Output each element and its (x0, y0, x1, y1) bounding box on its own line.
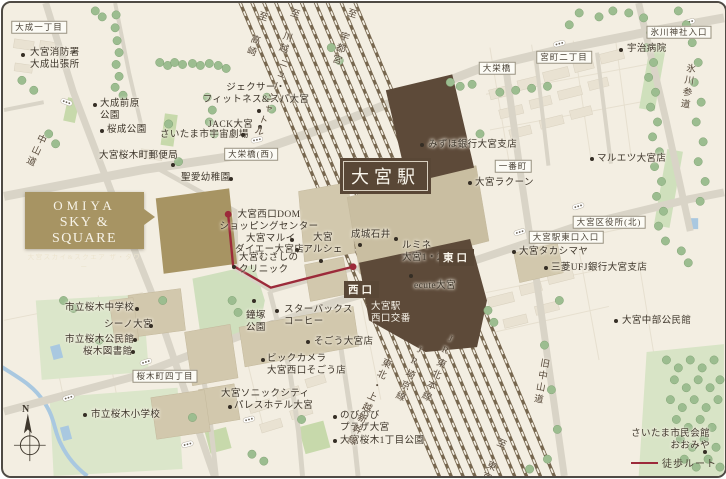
poi-dot-maruetsu (590, 157, 594, 161)
poi-dot-takashimaya (512, 250, 516, 254)
poi-label-sakuragi-elementary: 市立桜木小学校 (91, 410, 160, 422)
poi-dot-sakuragi-community-hall (133, 338, 137, 342)
poi-dot-seiai-kindergarten (229, 177, 233, 181)
poi-label-starbucks: スターバックスコーヒー (284, 305, 353, 328)
logo-title-line2: SKY & SQUARE (25, 215, 144, 247)
poi-dot-lumine (394, 237, 398, 241)
area-label-hikawa-jinja-iriguchi: 氷川神社入口 (646, 26, 711, 39)
area-label-daieibashi-west: 大栄橋(西) (224, 148, 278, 161)
poi-label-lumine: ルミネ大宮1・2 (402, 241, 442, 264)
poi-label-sakuragi-junior-high: 市立桜木中学校 (65, 303, 134, 315)
poi-label-mufg-bank: 三菱UFJ銀行大宮支店 (551, 263, 647, 275)
exit-label-west: 西口 (344, 281, 379, 298)
poi-label-palace-hotel: パレスホテル大宮 (234, 401, 313, 413)
poi-dot-musashino-clinic (232, 265, 236, 269)
line-label-to-takasaki: 至 高崎 (241, 9, 269, 59)
poi-dot-arche (319, 259, 323, 263)
poi-label-shino-omiya: シーノ大宮 (104, 320, 153, 332)
poi-dot-ecute (409, 274, 413, 278)
route-line-sample (631, 462, 658, 464)
poi-label-chubu-community-hall: 大宮中部公民館 (622, 316, 691, 328)
poi-dot-sakuragi-junior-high (135, 307, 139, 311)
line-label-nakasendo: 中山道 (20, 131, 48, 170)
poi-label-post-office: 大宮桜木町郵便局 (99, 151, 178, 163)
poi-dot-sakuragi-1chome-park (333, 439, 337, 443)
route-legend-label: 徒歩ルート (662, 455, 717, 470)
poi-dot-maehara-park (93, 103, 97, 107)
poi-dot-mizuho-bank (420, 143, 424, 147)
poi-label-space-theater: さいたま市宇宙劇場 (160, 130, 249, 142)
poi-label-sogo: そごう大宮店 (314, 337, 373, 349)
area-label-ichibancho: 一番町 (495, 160, 532, 173)
poi-dot-racoon (468, 181, 472, 185)
poi-dot-nobinobi-plaza (333, 415, 337, 419)
line-label-to-utsunomiya: 至 宇都宮 (327, 6, 359, 68)
project-logo-box: OMIYA SKY & SQUARE 大宮スカイ&スクエア ザ・タワー (25, 192, 144, 249)
poi-label-seijo-ishii: 成城石井 (351, 230, 391, 242)
poi-label-musashino-clinic: 大宮むさしのクリニック (239, 253, 298, 276)
area-label-miyacho-2chome: 宮町二丁目 (536, 51, 592, 64)
poi-label-seiai-kindergarten: 聖愛幼稚園 (181, 173, 231, 185)
poi-label-sakuragi-community-hall: 市立桜木公民館 (65, 335, 134, 347)
poi-label-uji-hospital: 宇治病院 (627, 44, 667, 56)
poi-dot-saitama-civic-hall (703, 450, 707, 454)
omiya-area-access-map: 大宮消防署大成出張所大成前原公園桜成公園大宮桜木町郵便局ジェクサー・フィットネス… (1, 1, 726, 478)
poi-label-sakuragi-library: 桜木図書館 (83, 347, 133, 359)
poi-label-maehara-park: 大成前原公園 (100, 99, 140, 122)
poi-label-biccamera: ビックカメラ大宮西口そごう店 (267, 354, 346, 377)
poi-label-sonic-city: 大宮ソニックシティ (221, 389, 310, 401)
poi-dot-mufg-bank (544, 266, 548, 270)
route-legend: 徒歩ルート (631, 455, 717, 470)
area-label-higashiguchi-iriguchi: 大宮駅東口入口 (529, 231, 604, 244)
poi-dot-starbucks (275, 309, 279, 313)
line-label-to-tokyo: 至 東京 (476, 435, 509, 478)
poi-dot-uji-hospital (619, 48, 623, 52)
poi-dot-kanetsuka-park (252, 299, 256, 303)
poi-dot-sakuranari-park (100, 129, 104, 133)
poi-label-fire-station: 大宮消防署大成出張所 (30, 48, 80, 71)
poi-label-dom-shopping: 大宮西口DOMショッピングセンター (219, 210, 318, 233)
poi-label-ecute: ecute大宮 (414, 281, 456, 293)
poi-dot-post-office (171, 163, 175, 167)
area-label-ward-office-north: 大宮区役所(北) (573, 216, 646, 229)
poi-dot-palace-hotel (228, 405, 232, 409)
exit-label-east: 東口 (439, 249, 474, 266)
poi-dot-sakuragi-elementary (83, 413, 87, 417)
poi-dot-fire-station (21, 53, 25, 57)
poi-dot-biccamera (261, 358, 265, 362)
logo-subtitle: 大宮スカイ&スクエア ザ・タワー (25, 251, 144, 271)
poi-dot-sogo (306, 340, 310, 344)
poi-label-racoon: 大宮ラクーン (475, 178, 534, 190)
logo-title-line1: OMIYA (25, 198, 144, 214)
poi-label-mizuho-bank: みずほ銀行大宮支店 (428, 140, 517, 152)
station-name: 大宮駅 (343, 161, 428, 191)
line-label-shinkansen: 東北・上越新幹線 (342, 355, 394, 448)
area-label-taisei-1chome: 大成一丁目 (11, 21, 67, 34)
poi-label-saitama-civic-hall: さいたま市民会館おおみや (631, 429, 710, 452)
poi-label-sakuranari-park: 桜成公園 (107, 125, 147, 137)
poi-label-takashimaya: 大宮タカシマヤ (519, 247, 588, 259)
line-label-jr-tohoku-line: JR東北本線 (416, 332, 458, 404)
logo-pointer (144, 209, 155, 225)
poi-label-arche: 大宮アルシェ (303, 233, 343, 256)
poi-label-kanetsuka-park: 鐘塚公園 (246, 311, 266, 334)
poi-dot-chubu-community-hall (614, 319, 618, 323)
poi-dot-sakuragi-library (131, 350, 135, 354)
compass-north-label: N (22, 404, 29, 415)
poi-label-maruetsu: マルエツ大宮店 (597, 154, 666, 166)
poi-label-jexer: ジェクサー・フィットネス&スパ大宮 (203, 83, 310, 106)
poi-dot-seijo-ishii (358, 243, 362, 247)
area-label-daieibashi: 大栄橋 (479, 62, 516, 75)
line-label-hikawa-sando: 氷川参道 (676, 62, 697, 112)
line-label-kyu-nakasendo: 旧中山道 (529, 357, 551, 407)
poi-label-marui: 大宮マルイ (246, 234, 296, 246)
line-label-to-kawagoe: 至 川越 (273, 6, 301, 56)
area-label-sakuragicho-4chome: 桜木町四丁目 (132, 370, 197, 383)
station-name-box: 大宮駅 (340, 158, 431, 194)
poi-label-nishiguchi-koban: 大宮駅西口交番 (371, 302, 411, 325)
